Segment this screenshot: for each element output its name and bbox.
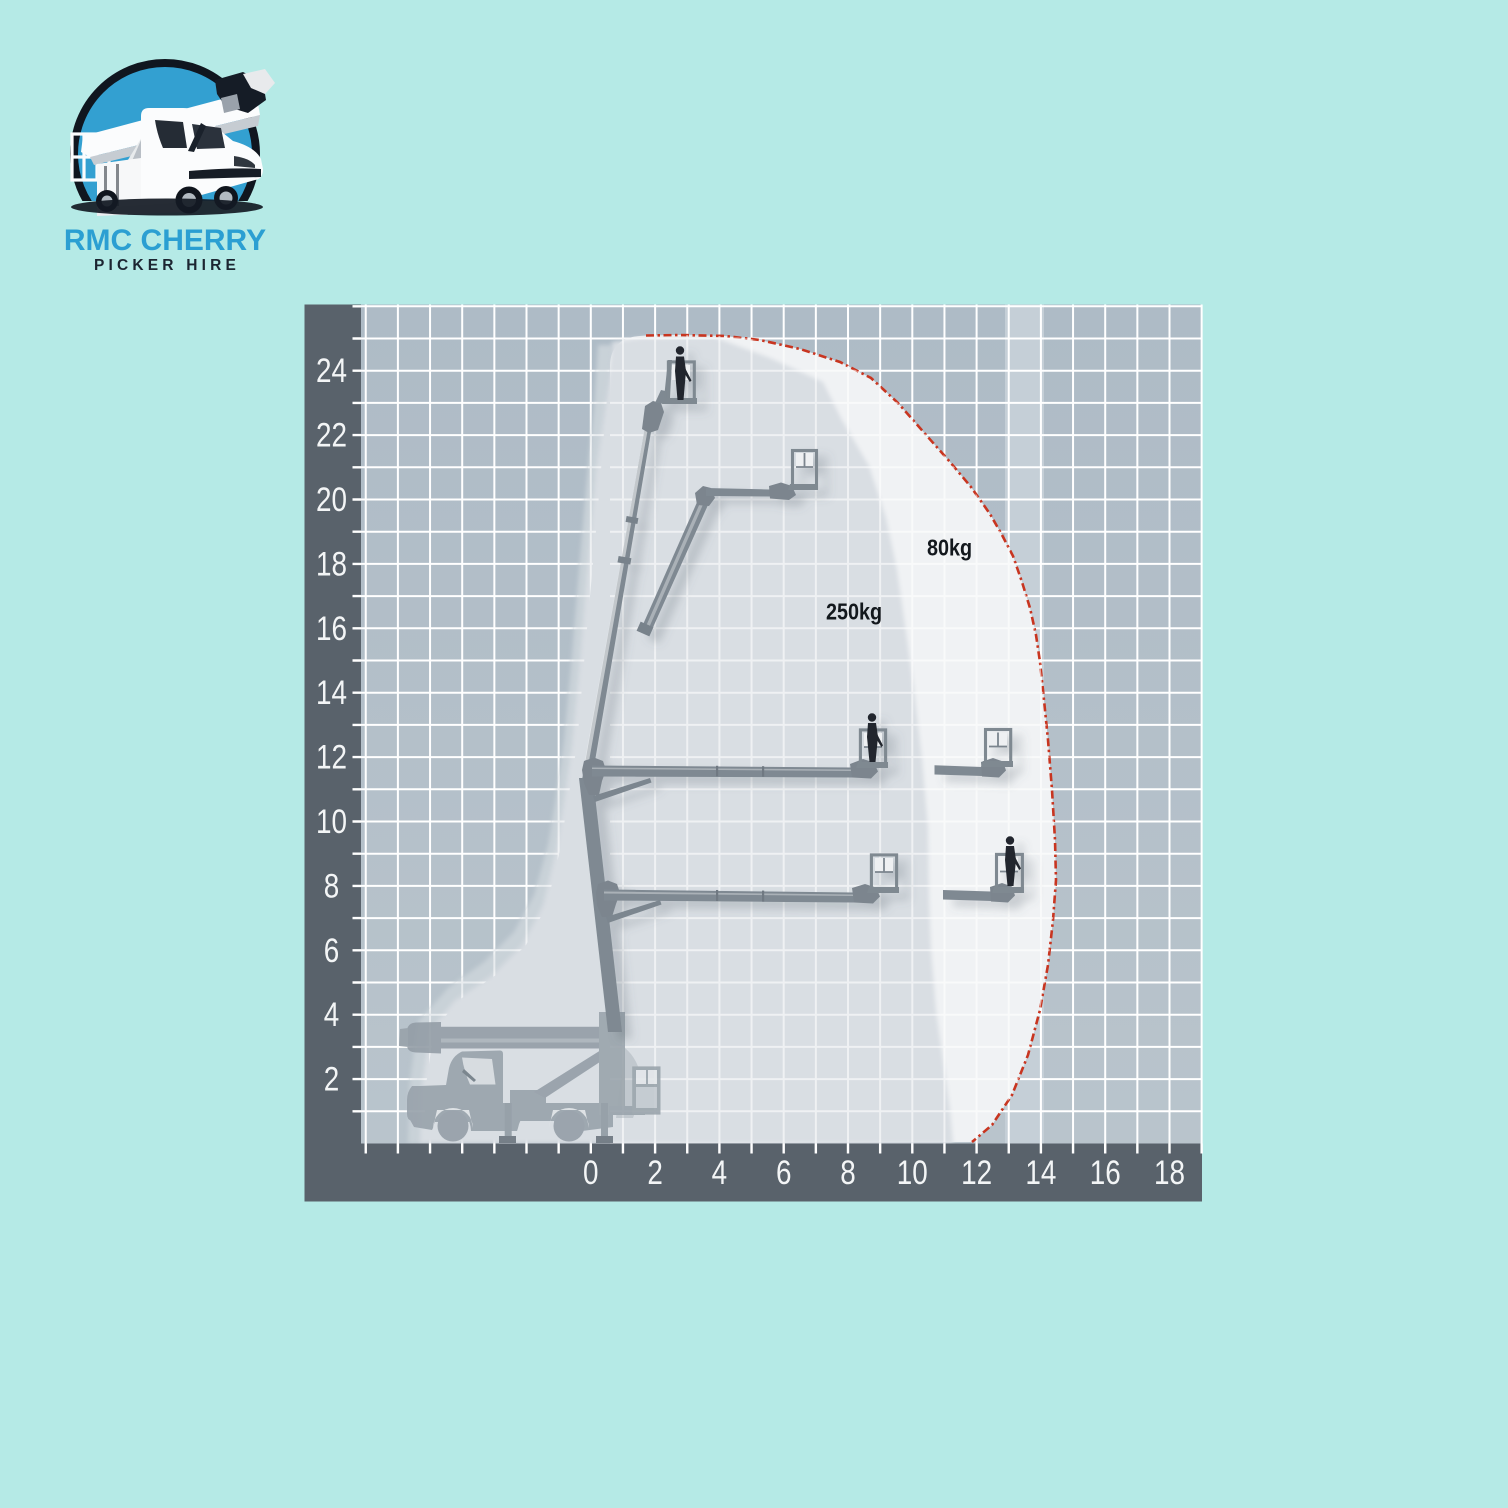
svg-text:12: 12 [316,738,347,776]
svg-text:8: 8 [324,867,340,905]
svg-text:16: 16 [316,609,347,647]
svg-text:2: 2 [324,1060,340,1098]
svg-text:2: 2 [647,1153,663,1191]
svg-text:6: 6 [776,1153,792,1191]
svg-text:16: 16 [1090,1153,1121,1191]
svg-text:12: 12 [961,1153,992,1191]
svg-text:18: 18 [316,545,347,583]
svg-text:10: 10 [897,1153,928,1191]
svg-text:22: 22 [316,416,347,454]
svg-text:8: 8 [840,1153,856,1191]
svg-text:6: 6 [324,931,340,969]
svg-text:4: 4 [324,996,340,1034]
svg-text:24: 24 [316,352,347,390]
svg-text:0: 0 [583,1153,599,1191]
svg-text:4: 4 [712,1153,728,1191]
svg-text:14: 14 [1025,1153,1056,1191]
svg-text:250kg: 250kg [826,599,882,625]
svg-text:10: 10 [316,802,347,840]
svg-text:14: 14 [316,674,347,712]
svg-text:20: 20 [316,480,347,518]
svg-text:18: 18 [1154,1153,1185,1191]
svg-text:80kg: 80kg [927,535,972,561]
